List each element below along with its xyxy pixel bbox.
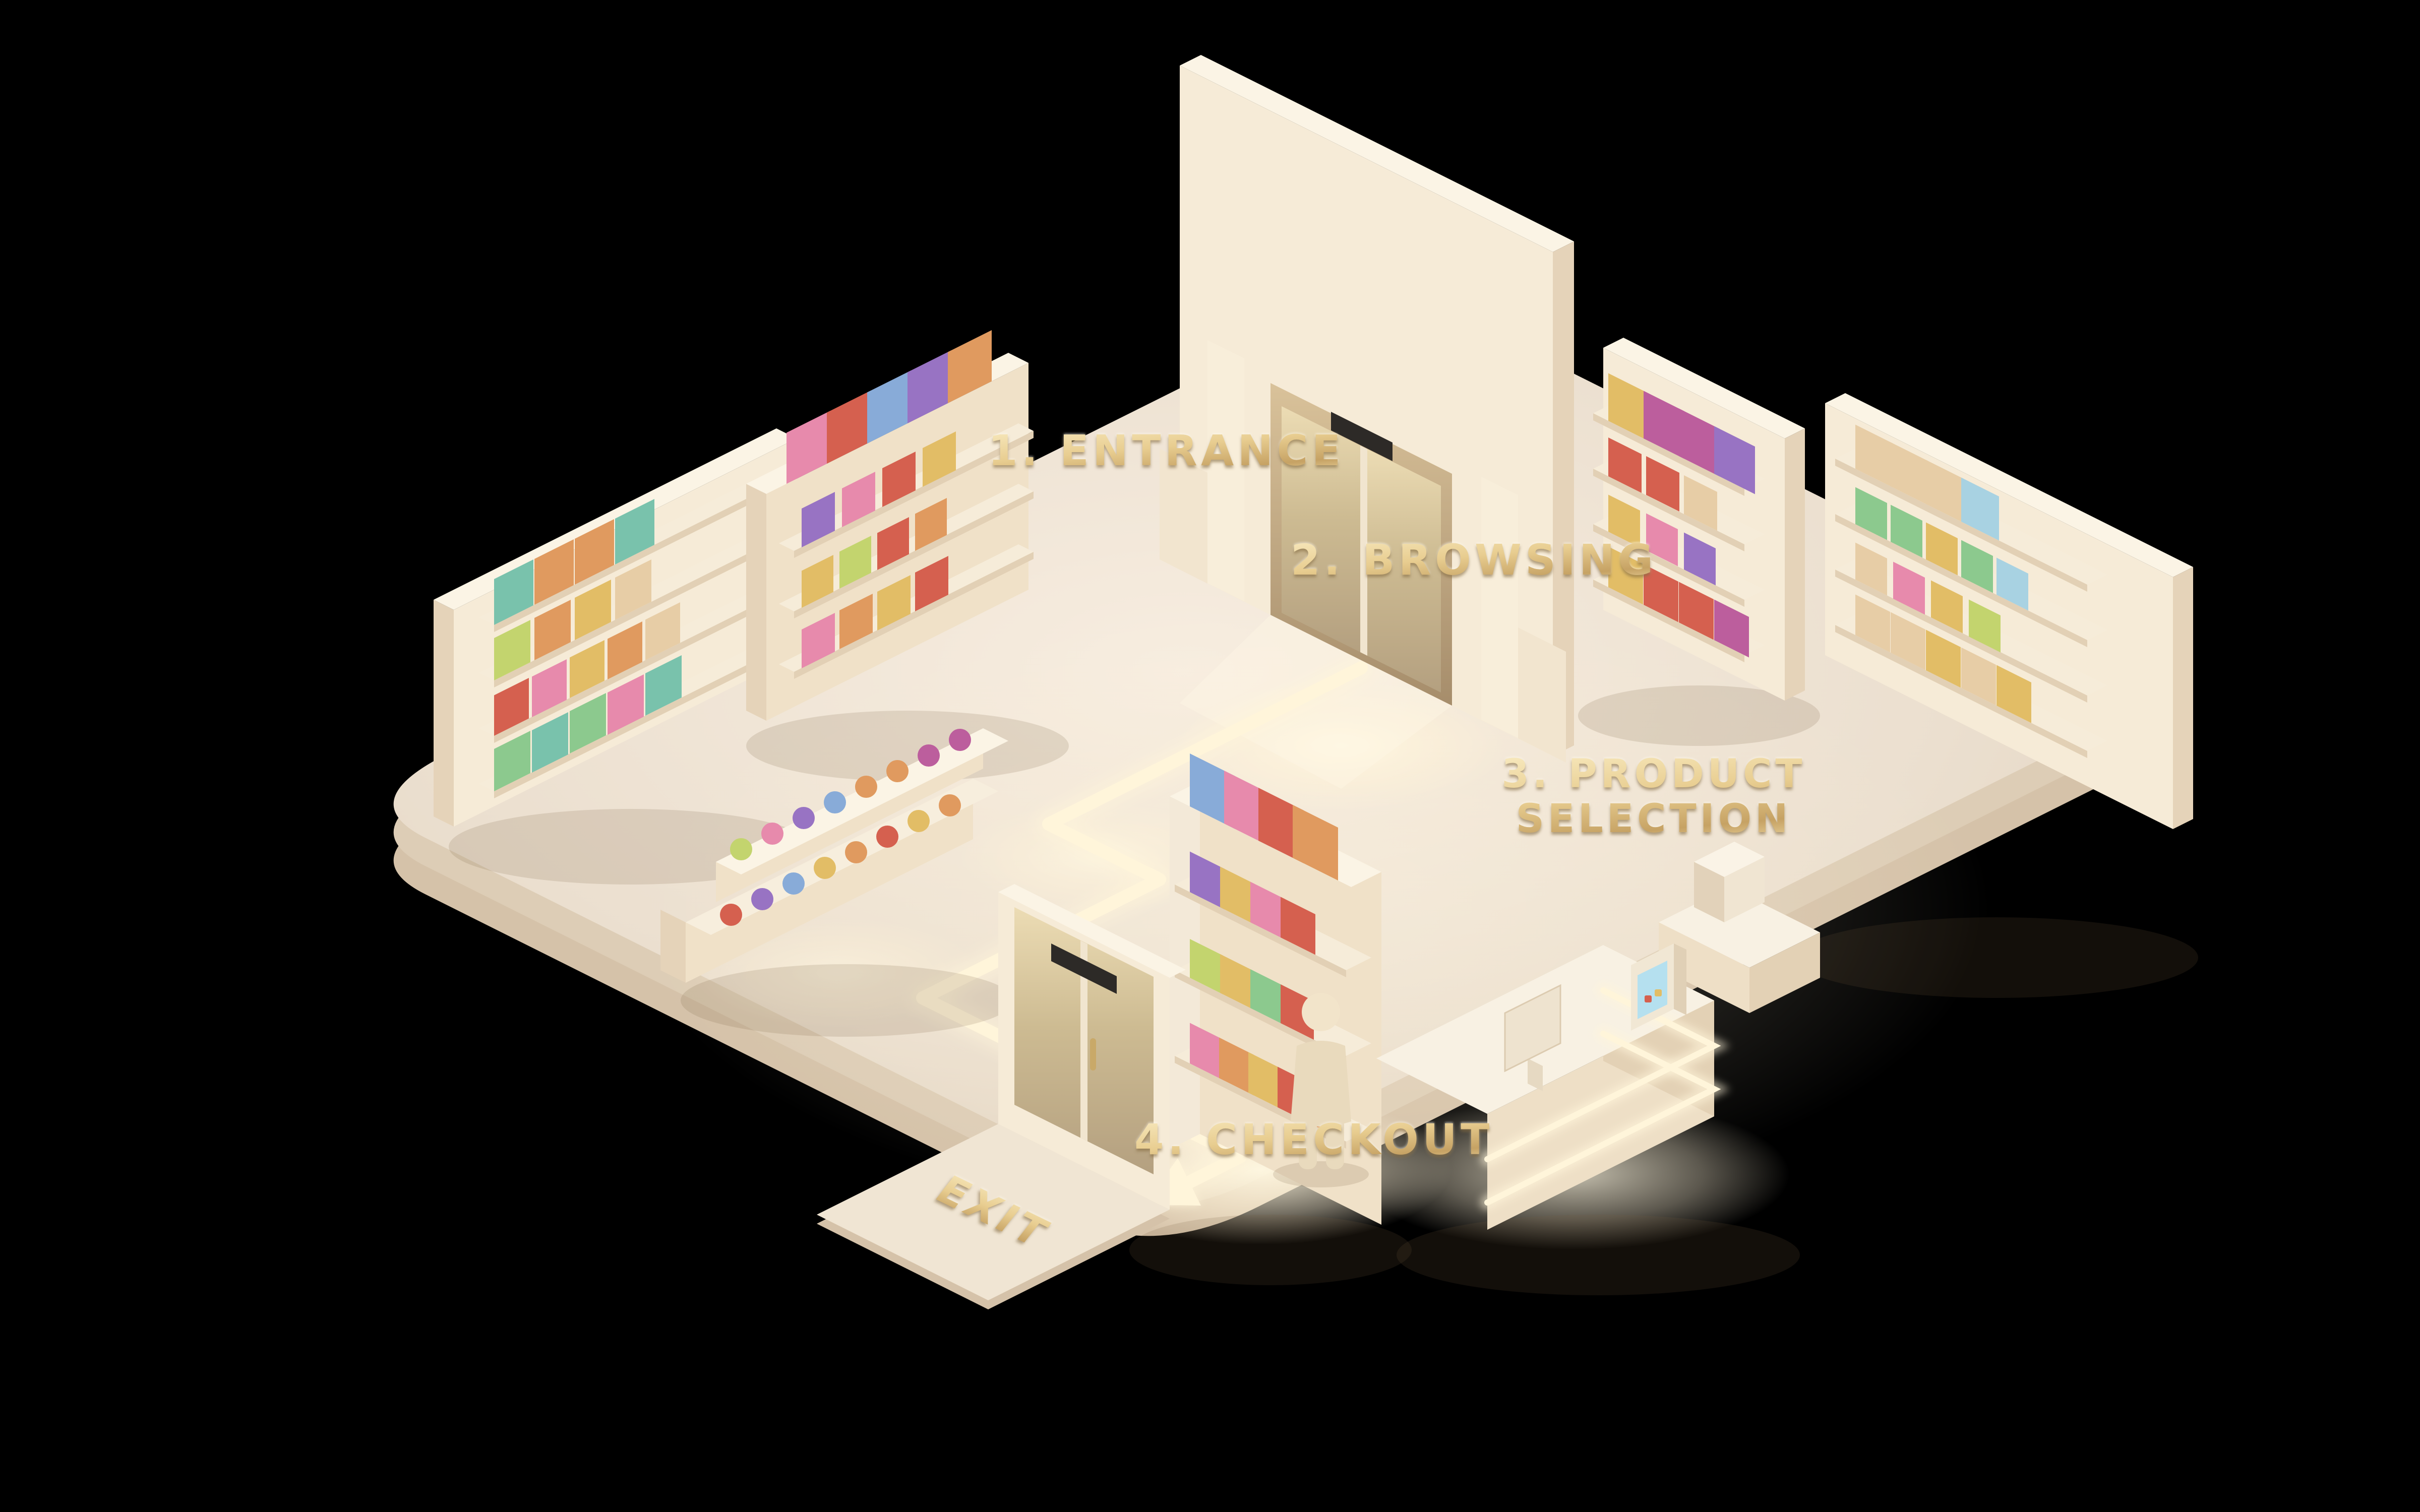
journey-step-3-line2: SELECTION [1487, 797, 1820, 842]
store-journey-illustration: 1. ENTRANCE 2. BROWSING 3. PRODUCT SELEC… [0, 0, 2420, 1512]
journey-step-4-label: 4. CHECKOUT [1134, 1115, 1493, 1164]
exit-door-handle [1090, 1038, 1096, 1070]
entrance-pilaster-right [1481, 477, 1518, 738]
journey-step-1-label: 1. ENTRANCE [988, 426, 1345, 475]
customer-body [1291, 1041, 1351, 1126]
customer-head [1302, 993, 1340, 1031]
journey-step-3-line1: 3. PRODUCT [1487, 752, 1820, 797]
store-journey-scene [0, 0, 2420, 1512]
journey-step-2-label: 2. BROWSING [1291, 535, 1657, 585]
journey-step-3-label: 3. PRODUCT SELECTION [1487, 752, 1820, 842]
